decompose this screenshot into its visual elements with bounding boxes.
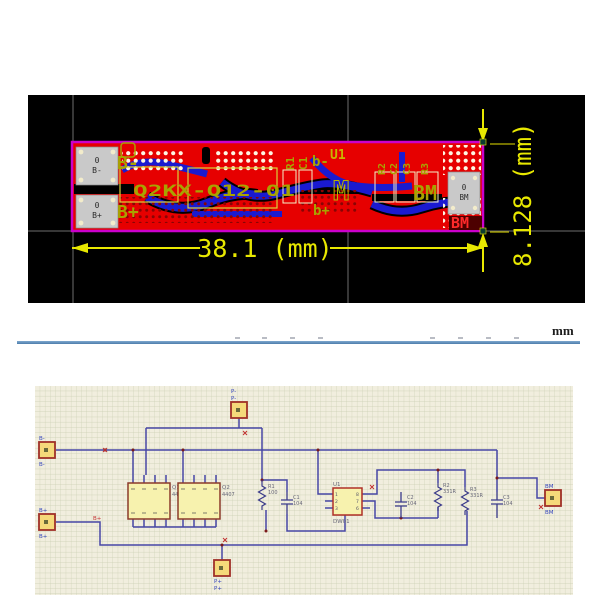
pad-left-bottom-line1: 0 (95, 201, 100, 210)
conn-b-plus-top-label: B+ (39, 508, 48, 514)
r2-value: 331R (443, 489, 457, 495)
silk-r1: R1 (284, 156, 297, 170)
conn-p-plus-label2: P+ (214, 586, 222, 592)
c2-value: 104 (407, 501, 417, 507)
schematic-drawing: B+ B- B- B+ B+ P- P- (35, 386, 573, 595)
silk-r2: R2 (377, 163, 388, 175)
u1-pin-7: 7 (356, 499, 359, 505)
ruler-tick (290, 337, 295, 339)
silk-c2: C2 (389, 163, 400, 175)
ruler-tick (262, 337, 267, 339)
pad-left-bottom: 0 B+ (76, 195, 118, 228)
c1-value: 104 (293, 501, 303, 507)
pad-bm: 0 BM (448, 172, 480, 214)
conn-p-minus-label2: P- (231, 396, 236, 402)
u1-part: DW01 (333, 519, 350, 525)
silk-bm-olive: BM (413, 181, 437, 205)
ruler-tick (235, 337, 240, 339)
product-image: 0 B- 0 B+ 0 BM (0, 0, 600, 600)
conn-bm-bottom-label: BM (545, 510, 554, 516)
schematic-panel: B+ B- B- B+ B+ P- P- (35, 386, 573, 595)
pcb-layout-drawing: 0 B- 0 B+ 0 BM (28, 95, 585, 303)
c3-value: 104 (503, 501, 513, 507)
q2-part: 4407 (222, 492, 235, 498)
u1-pin-6: 6 (356, 506, 359, 512)
silk-b-plus: B+ (117, 202, 139, 223)
silk-c3: C3 (402, 163, 413, 175)
conn-p-plus-label1: P+ (214, 579, 222, 585)
pad-bm-line1: 0 (462, 183, 467, 192)
pad-left-bottom-line2: B+ (92, 211, 102, 220)
silk-m-mark: M (333, 176, 349, 207)
silk-r3: R3 (420, 163, 431, 175)
q2-designator: Q2 (222, 485, 230, 491)
r3-value: 331R (470, 493, 484, 499)
pad-bm-line2: BM (459, 193, 469, 202)
ruler-tick (514, 337, 519, 339)
u1-pin-3: 3 (335, 506, 338, 512)
r1-value: 100 (268, 490, 278, 496)
conn-p-minus-label1: P- (231, 389, 236, 395)
dim-width-label: 38.1 (mm) (197, 234, 332, 263)
silk-model: Q2KX-Q12-01 (133, 181, 295, 200)
dim-height-label: 8.128 (mm) (509, 123, 537, 268)
conn-b-minus-top-label: B- (39, 436, 45, 442)
ruler-unit-label: mm (552, 323, 574, 339)
pad-left-top-line1: 0 (95, 156, 100, 165)
silk-b-minus: B- (117, 153, 139, 174)
u1-designator: U1 (333, 482, 341, 488)
conn-bm-top-label: BM (545, 484, 554, 490)
pcb-board: 0 B- 0 B+ 0 BM (72, 142, 483, 232)
conn-b-minus-bottom-label: B- (39, 462, 45, 468)
silk-c1: C1 (297, 156, 310, 170)
u1-pin-1: 1 (335, 492, 338, 498)
net-label-b-plus: B+ (93, 516, 102, 522)
pad-left-top-line2: B- (92, 166, 102, 175)
u1-pin-2: 2 (335, 499, 338, 505)
conn-b-plus-bottom-label: B+ (39, 534, 48, 540)
ruler-divider-line (17, 341, 580, 344)
pcb-layout-panel: 0 B- 0 B+ 0 BM (28, 95, 585, 303)
ruler-tick (318, 337, 323, 339)
ruler-tick (430, 337, 435, 339)
ruler-tick (458, 337, 463, 339)
u1-pin-8: 8 (356, 492, 359, 498)
pad-left-top: 0 B- (76, 147, 118, 185)
silk-u1: U1 (330, 148, 346, 163)
silk-b-plus-small: b+ (313, 203, 330, 219)
ruler-tick (486, 337, 491, 339)
silk-bm-red: BM (451, 214, 469, 232)
silk-b-minus-small: b- (312, 154, 329, 170)
